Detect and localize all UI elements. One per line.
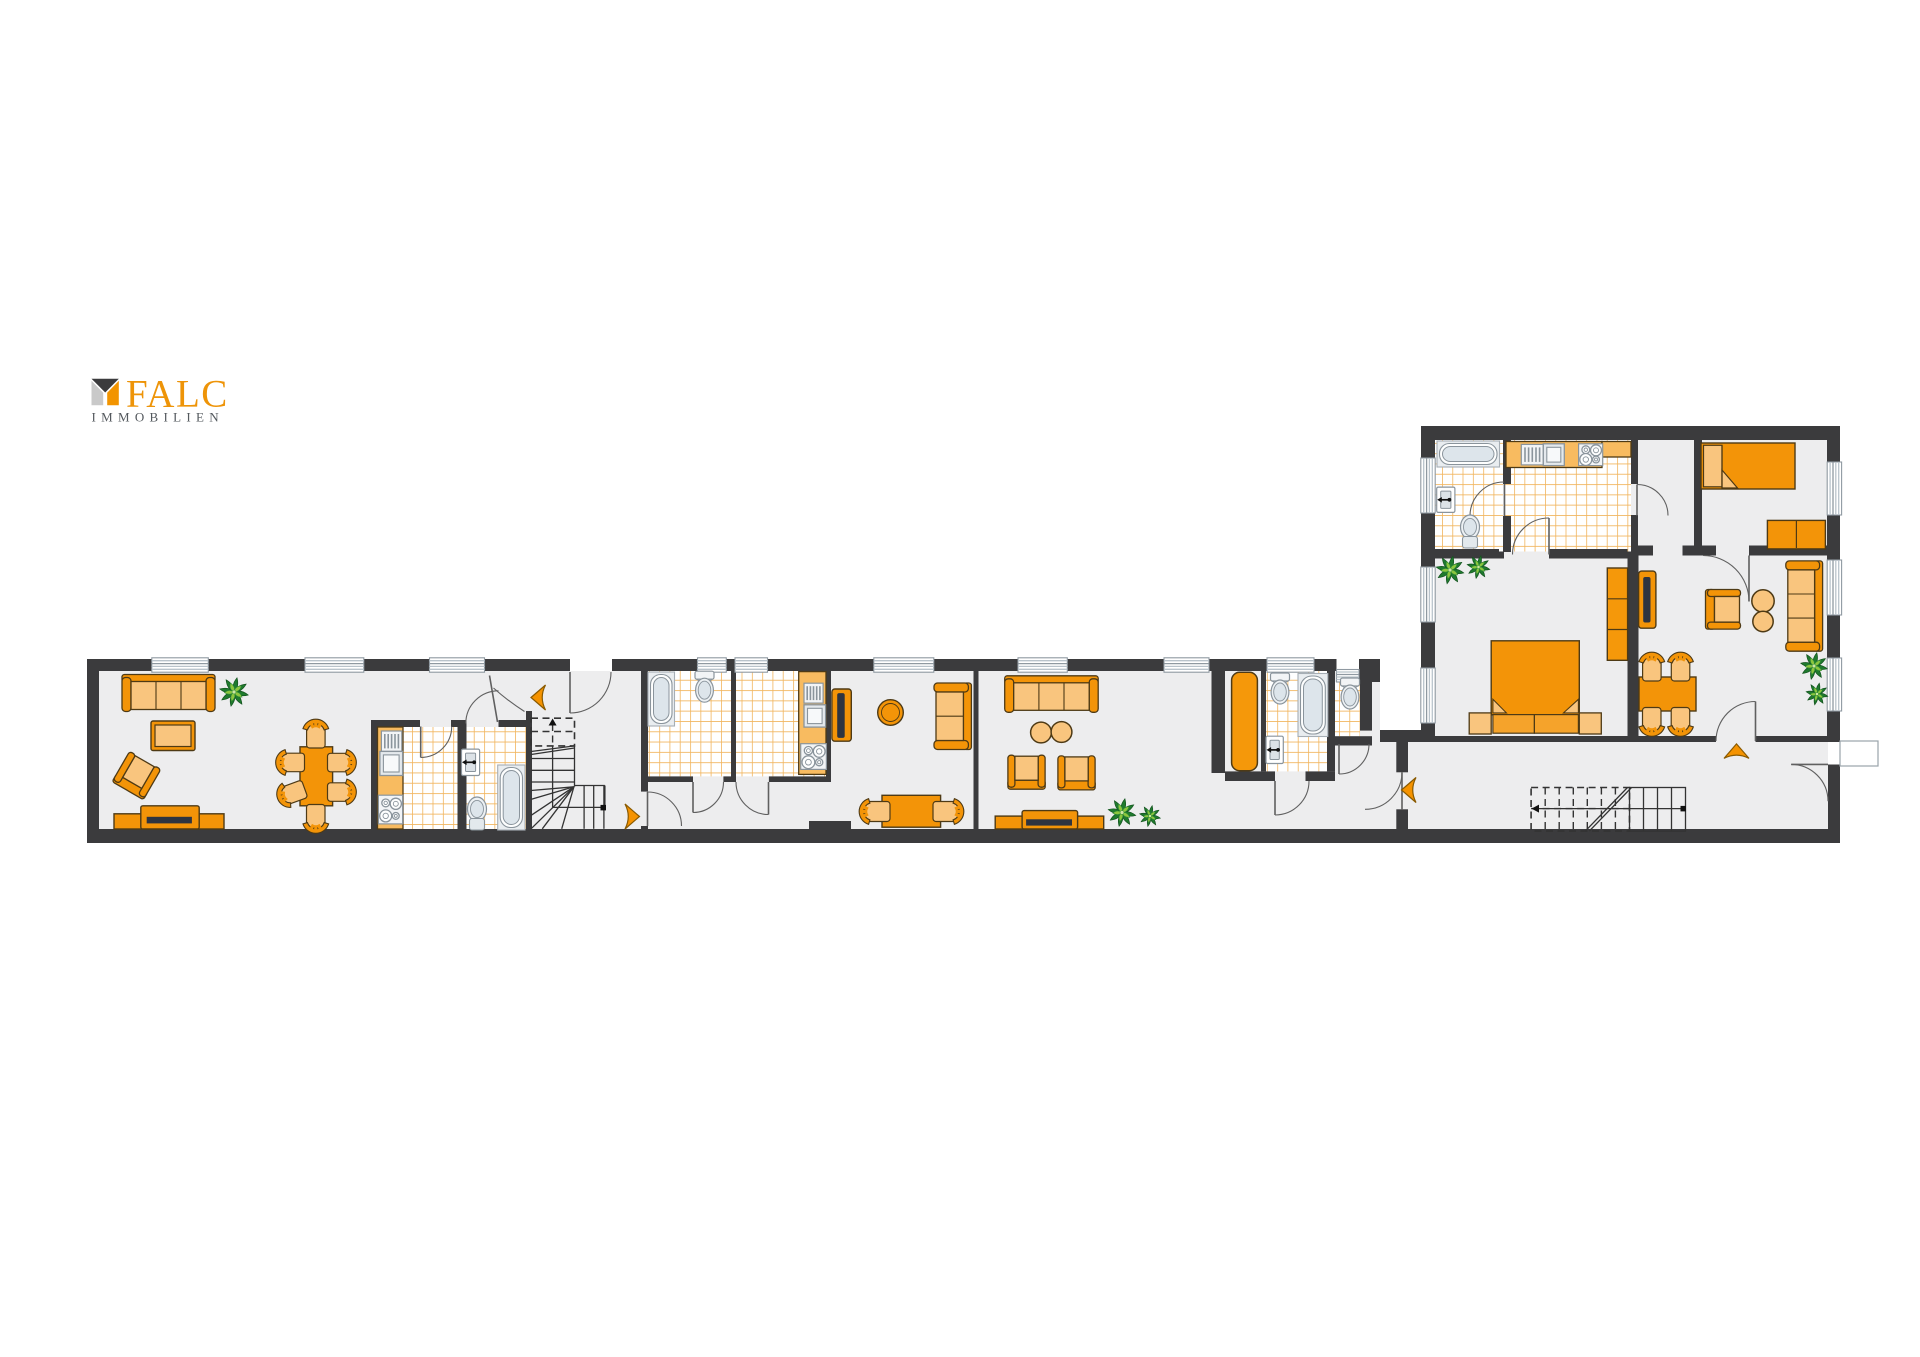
svg-text:IMMOBILIEN: IMMOBILIEN: [92, 410, 224, 425]
